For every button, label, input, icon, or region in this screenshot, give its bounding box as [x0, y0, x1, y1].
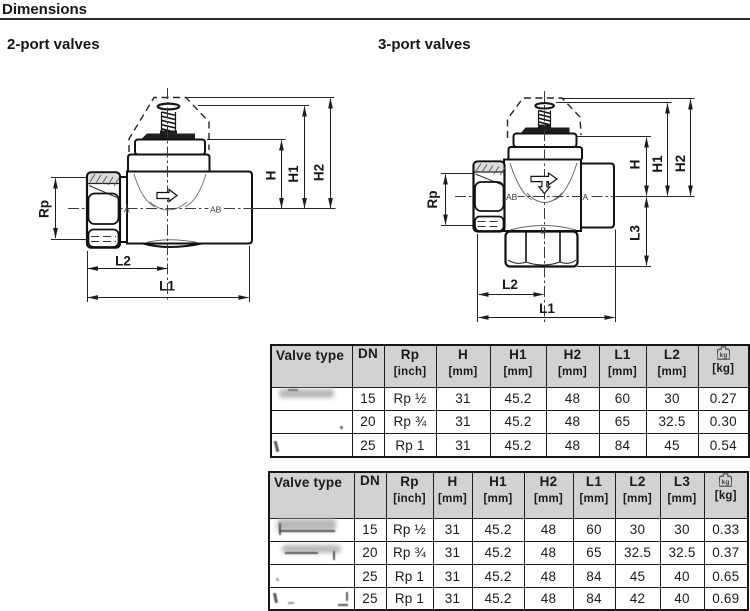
svg-text:AB: AB [210, 205, 222, 215]
svg-text:Rp: Rp [425, 191, 440, 209]
svg-text:L1: L1 [159, 279, 175, 294]
svg-text:H2: H2 [673, 155, 688, 172]
svg-text:AB: AB [506, 192, 518, 202]
svg-text:H1: H1 [650, 155, 665, 173]
svg-text:A: A [583, 192, 589, 202]
svg-text:L2: L2 [115, 254, 131, 269]
svg-text:H: H [264, 171, 279, 181]
svg-text:L1: L1 [539, 301, 555, 316]
svg-text:kg: kg [722, 479, 730, 486]
svg-text:B: B [541, 226, 547, 236]
svg-text:H2: H2 [312, 164, 327, 181]
svg-text:H: H [628, 160, 643, 170]
svg-text:A: A [124, 205, 130, 215]
svg-text:L2: L2 [502, 277, 518, 292]
svg-text:L3: L3 [628, 225, 643, 241]
svg-text:Rp: Rp [37, 200, 52, 218]
svg-text:H1: H1 [286, 165, 301, 183]
svg-text:kg: kg [719, 352, 727, 359]
